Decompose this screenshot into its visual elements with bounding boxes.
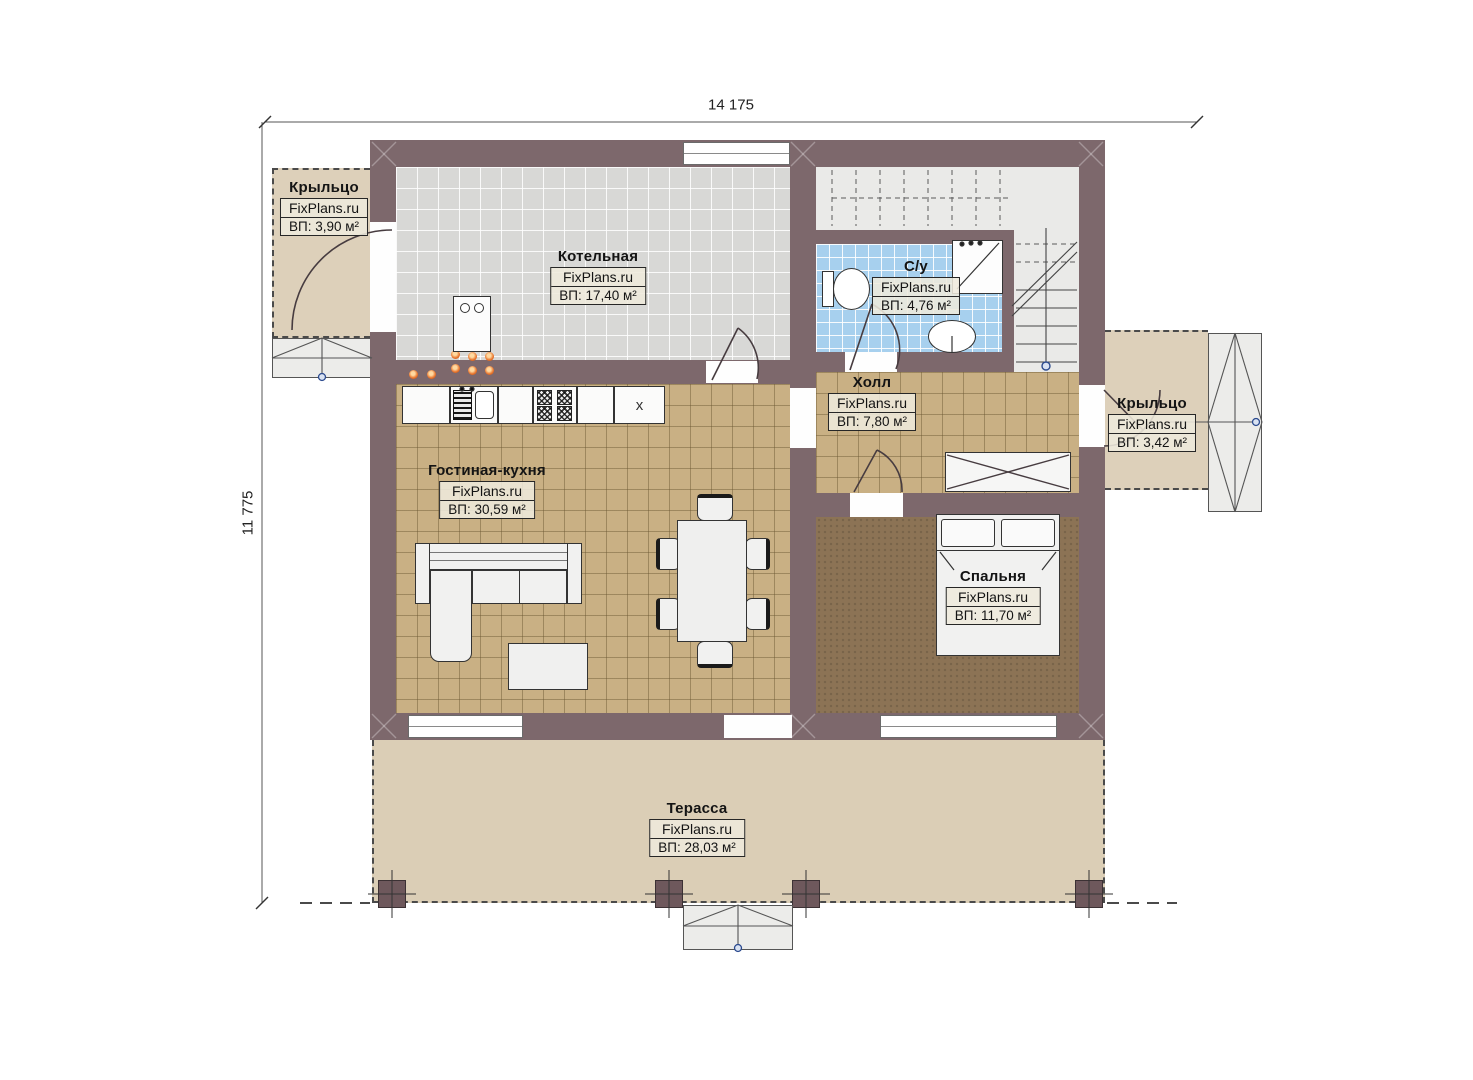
door-opening-bathroom [845,352,897,372]
watermark: FixPlans.ru [551,268,645,287]
room-area: ВП: 11,70 м² [947,607,1040,624]
room-label-terrace: Терасса FixPlans.ru ВП: 28,03 м² [649,800,745,857]
room-name: С/у [904,258,928,275]
room-label-boxes: FixPlans.ru ВП: 30,59 м² [439,481,535,519]
room-label-bedroom: Спальня FixPlans.ru ВП: 11,70 м² [946,568,1041,625]
bed-blanket-line [936,550,1060,551]
terrace-entry-steps [683,905,793,950]
bathroom-sink [928,320,976,353]
stove-burner [557,406,572,421]
porch-left-steps [272,338,372,378]
kitchen-cabinet-3 [577,386,614,424]
stairwell-floor-side [1014,230,1079,372]
floor-plan-canvas: x [0,0,1473,1080]
kitchen-sink-bowl [475,391,494,419]
dining-chair-right-1 [745,538,770,570]
room-area: ВП: 3,42 м² [1109,434,1195,451]
dining-chair-top [697,494,733,521]
door-opening-bedroom [850,493,903,517]
room-area: ВП: 30,59 м² [440,501,534,518]
lamp-dot [427,370,436,379]
room-label-boxes: FixPlans.ru ВП: 28,03 м² [649,819,745,857]
room-name: Крыльцо [1117,395,1187,412]
room-area: ВП: 4,76 м² [873,297,959,314]
room-label-hall: Холл FixPlans.ru ВП: 7,80 м² [828,374,916,431]
room-name: Крыльцо [289,179,359,196]
dimension-width: 14 175 [708,97,754,114]
room-label-boxes: FixPlans.ru ВП: 4,76 м² [872,277,960,315]
window-bedroom-bottom [880,715,1057,738]
room-label-boxes: FixPlans.ru ВП: 3,90 м² [280,198,368,236]
room-name: Холл [853,374,891,391]
terrace-pillar [1075,880,1103,908]
room-area: ВП: 28,03 м² [650,839,744,856]
room-area: ВП: 7,80 м² [829,413,915,430]
boiler-dial [474,303,484,313]
watermark: FixPlans.ru [947,588,1040,607]
kitchen-cabinet-1 [402,386,450,424]
bed-pillow-left [941,519,995,547]
appliance-x-label: x [636,397,644,414]
hall-wardrobe [945,452,1071,492]
dining-chair-bottom [697,641,733,668]
terrace-pillar [792,880,820,908]
coffee-table [508,643,588,690]
window-living-bottom [408,715,523,738]
stove-burner [537,406,552,421]
lamp-dot [485,352,494,361]
room-label-porch-left: Крыльцо FixPlans.ru ВП: 3,90 м² [280,179,368,236]
door-opening-boiler [706,361,758,383]
watermark: FixPlans.ru [281,199,367,218]
lamp-dot [485,366,494,375]
sofa-seat [472,570,520,604]
watermark: FixPlans.ru [873,278,959,297]
boiler-dial [460,303,470,313]
toilet-bowl [833,268,870,310]
dimension-height: 11 775 [240,491,257,536]
stairwell-floor-top [816,167,1079,230]
sofa-seat [519,570,567,604]
bed-pillow-right [1001,519,1055,547]
sofa-arm-right [567,543,582,604]
door-opening-left-porch [370,222,396,332]
lamp-dot [468,366,477,375]
door-opening-right-porch [1079,385,1105,447]
room-label-bathroom: С/у FixPlans.ru ВП: 4,76 м² [872,258,960,315]
kitchen-appliance-x: x [614,386,665,424]
lamp-dot [409,370,418,379]
door-opening-terrace [724,715,792,738]
room-name: Спальня [960,568,1026,585]
room-label-boxes: FixPlans.ru ВП: 11,70 м² [946,587,1041,625]
room-label-porch-right: Крыльцо FixPlans.ru ВП: 3,42 м² [1108,395,1196,452]
terrace-pillar [655,880,683,908]
lamp-dot [451,364,460,373]
room-label-boxes: FixPlans.ru ВП: 3,42 м² [1108,414,1196,452]
watermark: FixPlans.ru [1109,415,1195,434]
opening-living-hall [790,388,816,448]
kitchen-cabinet-2 [498,386,533,424]
room-label-boiler: Котельная FixPlans.ru ВП: 17,40 м² [550,248,646,305]
sofa-back [415,543,582,570]
sofa-chaise [430,570,472,662]
watermark: FixPlans.ru [829,394,915,413]
sofa-arm-left [415,543,430,604]
dining-chair-right-2 [745,598,770,630]
window-top [683,142,790,165]
room-name: Терасса [667,800,728,817]
room-label-living-kitchen: Гостиная-кухня FixPlans.ru ВП: 30,59 м² [428,462,546,519]
room-area: ВП: 3,90 м² [281,218,367,235]
wall-bathroom-right [1002,230,1014,372]
dining-table [677,520,747,642]
stove-burner [557,390,572,405]
room-label-boxes: FixPlans.ru ВП: 7,80 м² [828,393,916,431]
kitchen-drainboard [453,390,472,420]
room-label-boxes: FixPlans.ru ВП: 17,40 м² [550,267,646,305]
watermark: FixPlans.ru [440,482,534,501]
room-area: ВП: 17,40 м² [551,287,645,304]
porch-right-steps [1208,333,1262,512]
stove-burner [537,390,552,405]
watermark: FixPlans.ru [650,820,744,839]
room-name: Гостиная-кухня [428,462,546,479]
room-name: Котельная [558,248,638,265]
terrace-pillar [378,880,406,908]
lamp-dot [468,352,477,361]
boiler-unit [453,296,491,352]
